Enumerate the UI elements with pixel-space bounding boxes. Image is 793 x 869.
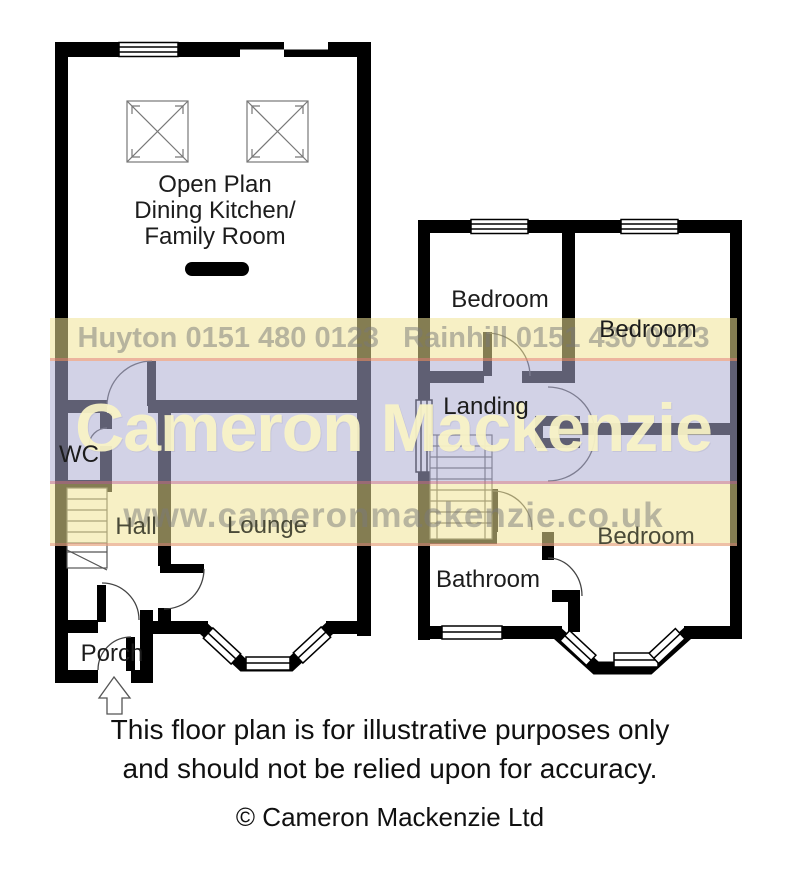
open-plan-line2: Dining Kitchen/ (134, 198, 295, 224)
room-label-bedroom-bottom: Bedroom (597, 524, 694, 550)
watermark-band-brand (50, 361, 737, 484)
room-label-open-plan: Open Plan Dining Kitchen/ Family Room (134, 172, 295, 250)
skylight-icon (127, 101, 188, 162)
skylight-icon (247, 101, 308, 162)
room-label-bedroom-front: Bedroom (451, 287, 548, 313)
room-label-lounge: Lounge (227, 513, 307, 539)
copyright-text: © Cameron Mackenzie Ltd (0, 802, 780, 833)
room-label-hall: Hall (115, 514, 156, 540)
open-plan-line3: Family Room (134, 224, 295, 250)
room-label-bedroom-rear: Bedroom (599, 317, 696, 343)
entrance-arrow-icon (99, 677, 130, 714)
room-label-porch: Porch (81, 641, 144, 667)
open-plan-line1: Open Plan (134, 172, 295, 198)
disclaimer-line1: This floor plan is for illustrative purp… (0, 714, 780, 746)
room-label-bathroom: Bathroom (436, 567, 540, 593)
room-label-wc: WC (59, 442, 99, 468)
kitchen-island (185, 262, 249, 276)
room-label-landing: Landing (443, 394, 528, 420)
floorplan-page: Huyton 0151 480 0123 Rainhill 0151 430 0… (0, 0, 793, 869)
disclaimer-line2: and should not be relied upon for accura… (0, 753, 780, 785)
